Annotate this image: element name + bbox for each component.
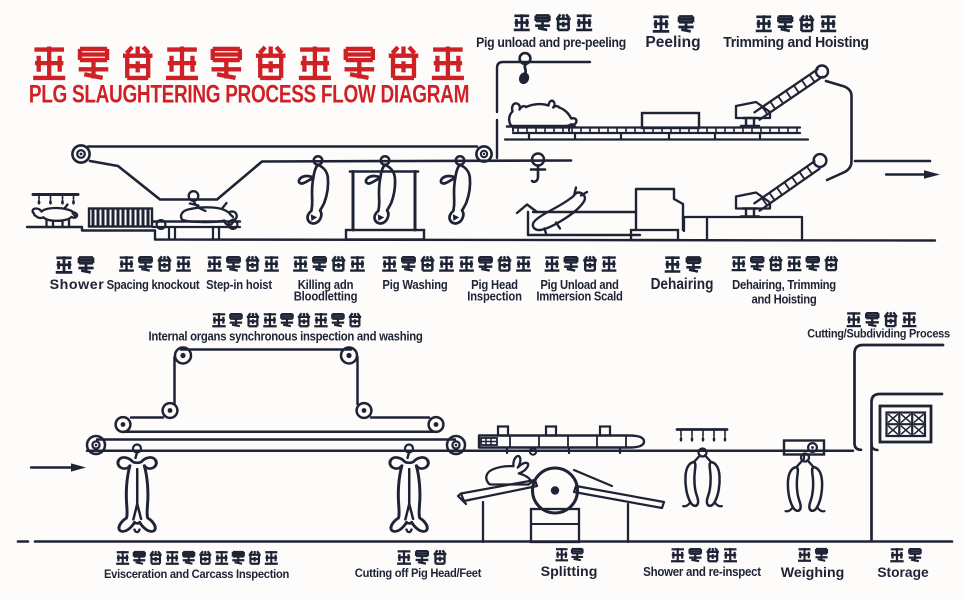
svg-text:Dehairing, Trimming: Dehairing, Trimming bbox=[732, 277, 836, 292]
svg-text:Spacing knockout: Spacing knockout bbox=[107, 277, 200, 292]
svg-text:Internal organs synchronous in: Internal organs synchronous inspection a… bbox=[148, 329, 422, 344]
svg-text:Shower and re-inspect: Shower and re-inspect bbox=[643, 564, 761, 579]
svg-text:Peeling: Peeling bbox=[645, 34, 700, 51]
svg-text:Evisceration and Carcass Inspe: Evisceration and Carcass Inspection bbox=[104, 567, 289, 581]
svg-text:Cutting off Pig Head/Feet: Cutting off Pig Head/Feet bbox=[355, 566, 482, 580]
svg-text:Shower: Shower bbox=[50, 277, 105, 293]
svg-text:Cutting/Subdividing Process: Cutting/Subdividing Process bbox=[807, 327, 950, 341]
svg-text:Trimming and Hoisting: Trimming and Hoisting bbox=[723, 35, 869, 52]
svg-text:Bloodletting: Bloodletting bbox=[294, 289, 358, 304]
svg-text:Inspection: Inspection bbox=[467, 289, 522, 304]
svg-text:Pig Washing: Pig Washing bbox=[382, 277, 447, 292]
svg-text:Splitting: Splitting bbox=[541, 564, 598, 580]
svg-text:PLG SLAUGHTERING PROCESS FLOW: PLG SLAUGHTERING PROCESS FLOW DIAGRAM bbox=[29, 80, 469, 108]
svg-text:Dehairing: Dehairing bbox=[651, 276, 714, 293]
svg-text:Pig unload and pre-peeling: Pig unload and pre-peeling bbox=[476, 34, 626, 50]
svg-text:Weighing: Weighing bbox=[781, 565, 845, 581]
svg-text:Step-in hoist: Step-in hoist bbox=[206, 277, 272, 292]
svg-text:Storage: Storage bbox=[877, 565, 929, 580]
svg-text:and Hoisting: and Hoisting bbox=[752, 292, 817, 307]
svg-text:Immersion Scald: Immersion Scald bbox=[536, 289, 622, 304]
